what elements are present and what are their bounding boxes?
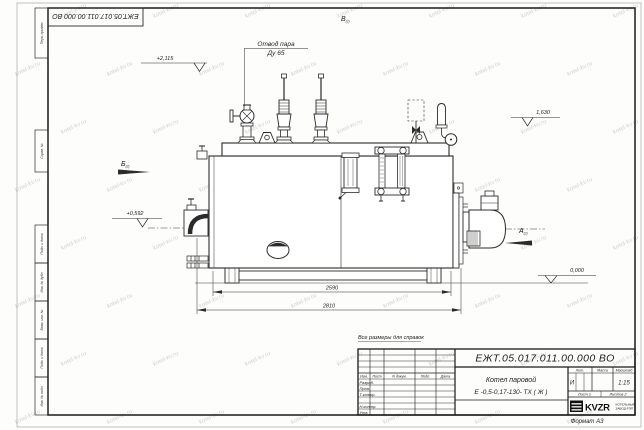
stamp-label: Инв. № дубл. xyxy=(40,272,44,293)
spec-lit: Лит. xyxy=(575,369,584,373)
manhole xyxy=(267,242,289,259)
stamp-label: Взам. инв. № xyxy=(40,309,44,330)
elevation-top: +2,115 xyxy=(157,56,175,62)
dim-overall-length: 2810 xyxy=(322,304,336,310)
format-note: Формат А3 xyxy=(571,419,604,425)
spec-masshtab: Масштаб xyxy=(616,369,634,373)
product-name-line2: Е -0,5-0,17-130- ТХ ( Ж ) xyxy=(474,389,547,396)
product-name-line1: Котел паровой xyxy=(486,376,536,384)
col-ndocum: N докум. xyxy=(392,375,407,379)
col-izm: Изм. xyxy=(360,375,368,379)
elevation-right: 1,630 xyxy=(536,110,551,116)
callout-line2: Ду 65 xyxy=(267,50,285,57)
elevation-left: +0,592 xyxy=(127,211,144,217)
titleblock-designation: ЕЖТ.05.017.011.00.000 ВО xyxy=(475,353,614,365)
reference-note-text: Все размеры для справок xyxy=(358,335,424,341)
scale-value: 1:15 xyxy=(618,381,630,387)
stamp-label: Перв. примен. xyxy=(40,22,44,45)
row-prov: Пров. xyxy=(360,386,371,391)
col-data: Дата xyxy=(440,375,450,379)
stamp-label: Справ. № xyxy=(40,143,44,159)
dim-skid-length: 2590 xyxy=(325,286,339,292)
blueprint-page: kotel-kv.rukotel-kv.rukotel-kv.rukotel-k… xyxy=(0,0,644,430)
designation-rotated-text: ЕЖТ.05.017.011.00.000 ВО xyxy=(52,12,139,19)
liter-value: И xyxy=(570,381,575,387)
stamp-label: Инв. № подл. xyxy=(40,385,44,406)
stamp-label: Подп. и дата xyxy=(40,233,44,254)
col-podp: Подп. xyxy=(421,375,431,379)
row-nkontr: Н.контр. xyxy=(360,404,377,409)
stamp-label: Подп. и дата xyxy=(40,347,44,368)
callout-line1: Отвод пара xyxy=(257,40,295,48)
sheets-total: Листов 2 xyxy=(609,393,628,397)
company-name-line2: ЗАВОД РЭП xyxy=(616,407,634,411)
spec-massa: Масса xyxy=(597,369,608,373)
drawing-sheet: kotel-kv.rukotel-kv.rukotel-kv.rukotel-k… xyxy=(0,0,644,430)
logo-text: KVZR xyxy=(585,403,610,414)
elevation-ground: 0,000 xyxy=(570,268,585,274)
row-tkontr: Т.контр. xyxy=(360,392,376,397)
row-razrab: Разраб. xyxy=(360,380,374,385)
col-list: Лист xyxy=(371,375,381,379)
boiler-shell xyxy=(209,143,453,268)
row-utv: Утв. xyxy=(360,410,369,415)
sheet-number: Лист 1 xyxy=(577,393,591,397)
reference-note: Все размеры для справок xyxy=(358,335,424,342)
